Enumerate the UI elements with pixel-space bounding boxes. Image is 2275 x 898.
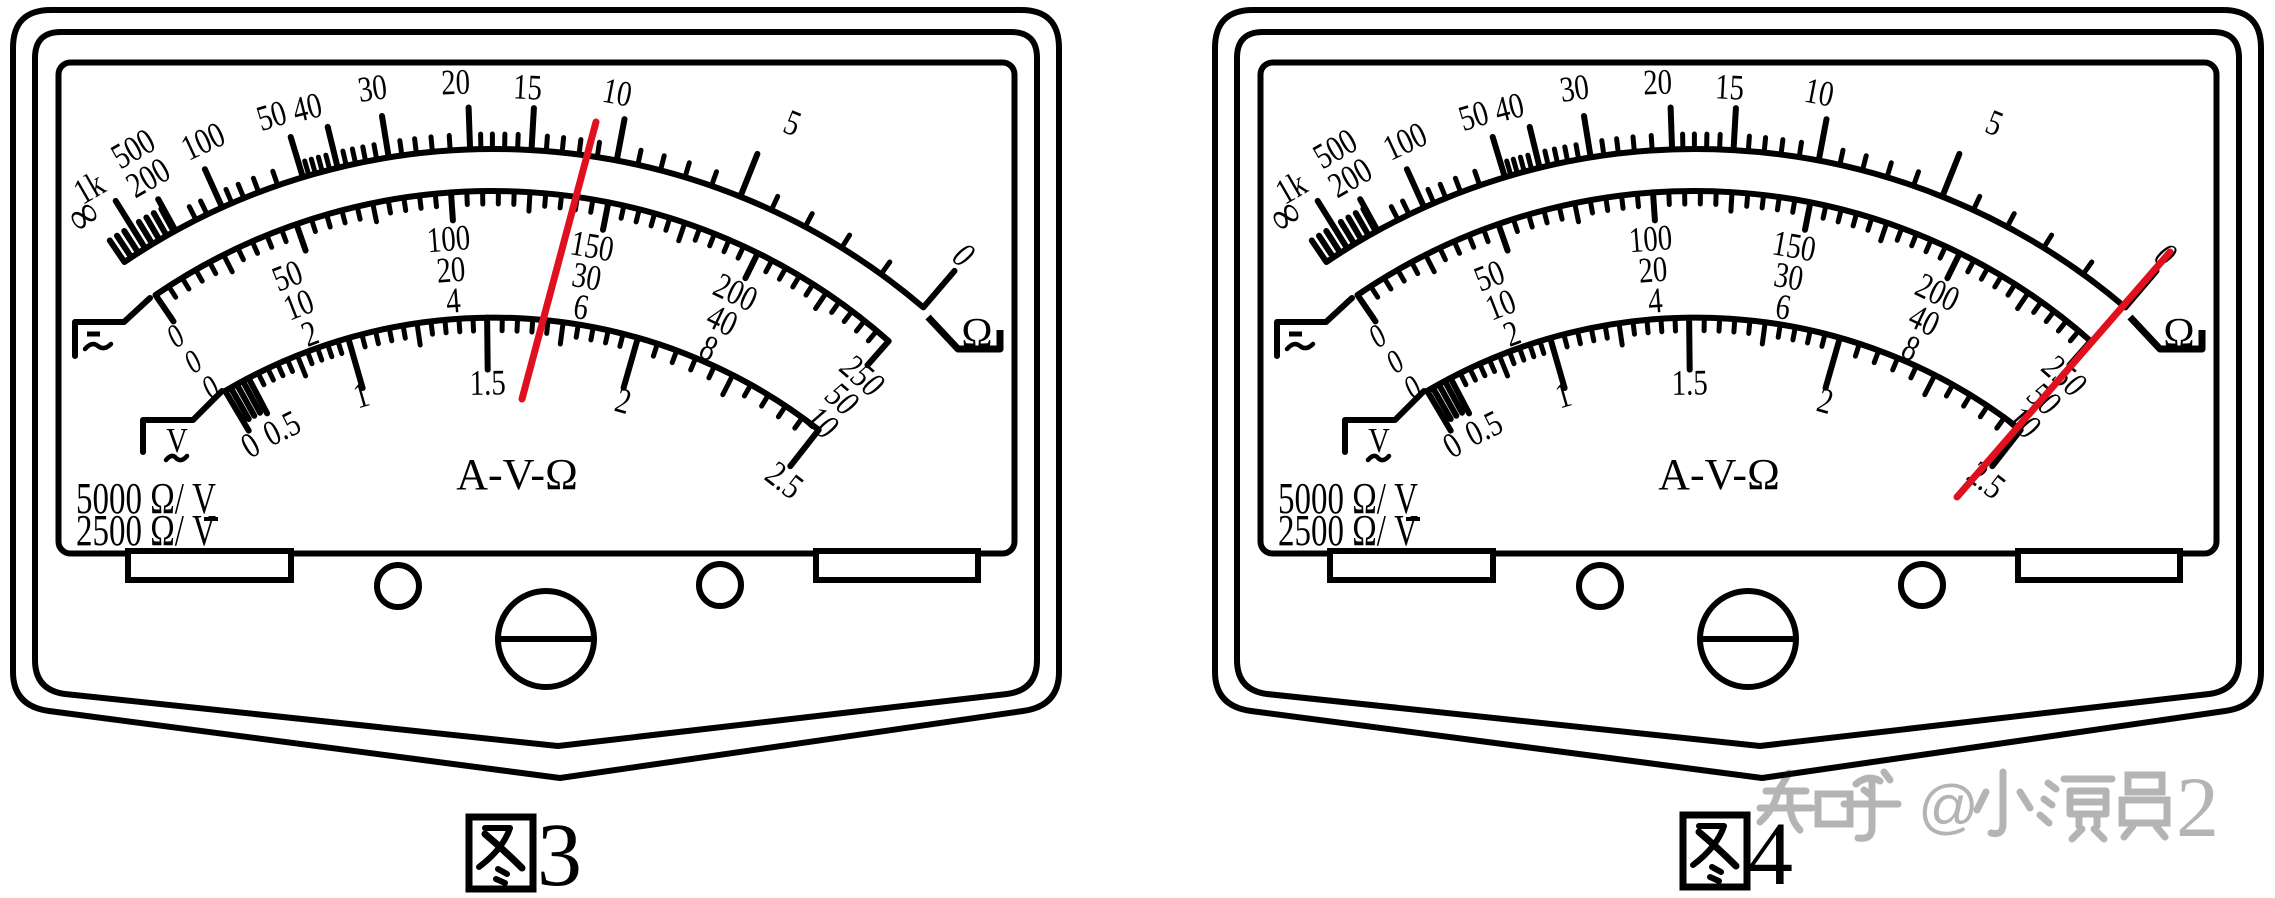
svg-text:2: 2: [2176, 759, 2219, 855]
svg-text:3: 3: [537, 806, 582, 898]
svg-text:@: @: [1918, 773, 1979, 840]
svg-text:4: 4: [1748, 805, 1793, 898]
